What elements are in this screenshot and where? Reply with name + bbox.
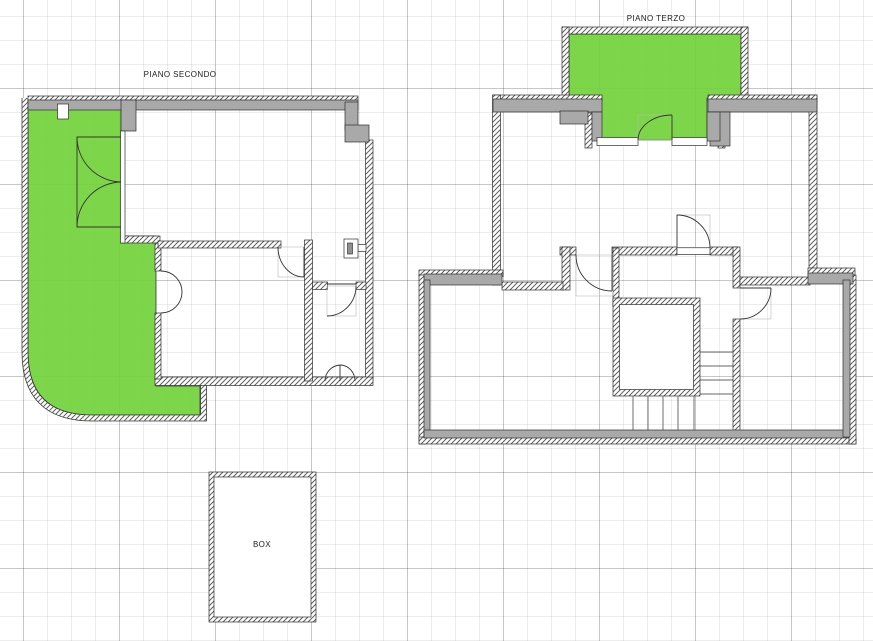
door-main-room	[677, 215, 710, 248]
door-bedroom	[278, 247, 304, 277]
label-piano-secondo: PIANO SECONDO	[144, 70, 217, 79]
box-garage: BOX	[209, 472, 316, 622]
wall-recess	[58, 104, 69, 119]
terrace-green-left	[28, 108, 200, 415]
door-small-room	[327, 284, 356, 316]
floor-plan-drawing: PIANO SECONDO	[0, 0, 873, 641]
double-door-bedroom	[161, 271, 182, 313]
door-right-room	[740, 288, 771, 319]
stairwell	[613, 298, 700, 396]
label-piano-terzo: PIANO TERZO	[627, 14, 685, 23]
label-box: BOX	[253, 540, 271, 549]
floor-plan-piano-secondo: PIANO SECONDO	[25, 70, 373, 418]
door-corridor	[576, 255, 613, 296]
wall-niche-fixture	[344, 239, 366, 258]
floor-plan-canvas: PIANO SECONDO	[0, 0, 873, 641]
floor-plan-piano-terzo: PIANO TERZO	[419, 14, 856, 444]
